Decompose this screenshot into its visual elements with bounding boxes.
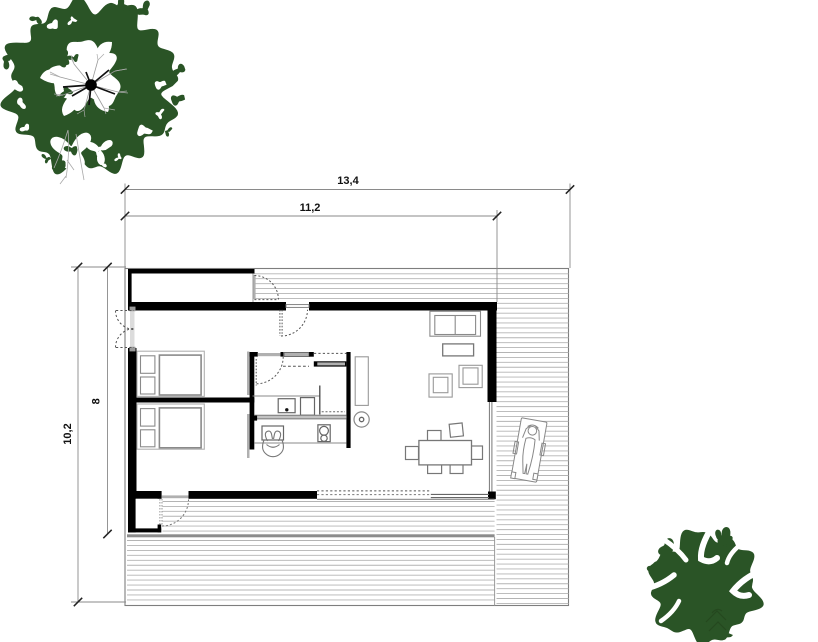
svg-text:13,4: 13,4 (337, 175, 359, 187)
svg-text:11,2: 11,2 (300, 202, 321, 214)
svg-text:8: 8 (91, 398, 103, 404)
svg-text:10,2: 10,2 (62, 423, 74, 444)
